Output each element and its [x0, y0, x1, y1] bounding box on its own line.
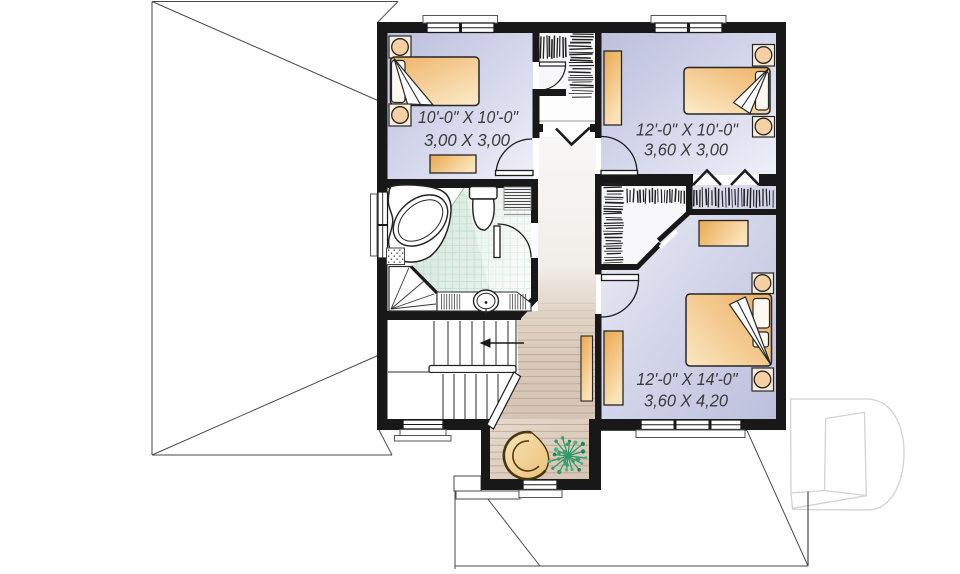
svg-text:3,00 X 3,00: 3,00 X 3,00 — [424, 130, 510, 150]
svg-text:12'-0" X 10'-0": 12'-0" X 10'-0" — [636, 120, 739, 140]
svg-text:12'-0" X 14'-0": 12'-0" X 14'-0" — [637, 369, 739, 389]
svg-text:3,60 X 3,00: 3,60 X 3,00 — [644, 140, 728, 160]
svg-text:10'-0" X 10'-0": 10'-0" X 10'-0" — [418, 107, 519, 127]
svg-text:3,60 X 4,20: 3,60 X 4,20 — [644, 391, 728, 411]
